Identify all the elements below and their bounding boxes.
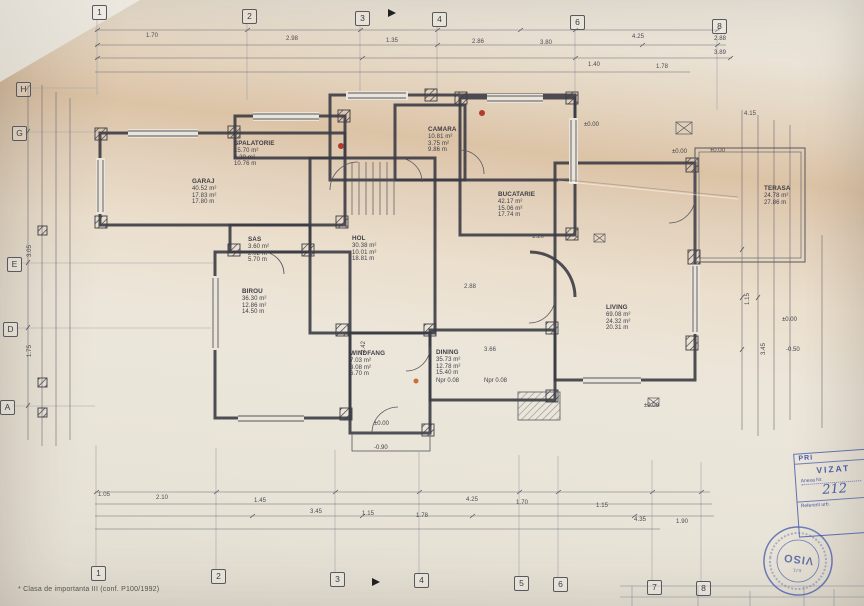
level-label: Npr 0.08	[436, 378, 459, 384]
grid-marker-left: G	[12, 126, 27, 141]
dim-label: 1.45	[254, 498, 266, 504]
grid-marker-left: H	[16, 82, 31, 97]
room-label-hol: HOL30.38 m²10.01 m²18.81 m	[352, 236, 376, 263]
dim-label: 3.89	[714, 50, 726, 56]
room-label-dining: DINING35.73 m²12.78 m²15.40 m	[436, 350, 460, 377]
room-label-camara: CAMARA10.81 m²3.75 m²9.86 m	[428, 127, 457, 154]
level-label: ±0.00	[374, 421, 389, 427]
grid-marker-bottom: 8	[696, 581, 711, 596]
dim-label: 1.78	[656, 64, 668, 70]
room-label-bucatarie: BUCATARIE42.17 m²15.06 m²17.74 m	[498, 192, 535, 219]
paper-crease	[558, 179, 738, 197]
paper-crease-highlight	[558, 181, 738, 199]
room-label-sas: SAS3.60 m²2.02 m²5.70 m	[248, 237, 269, 264]
dim-label: 3.80	[540, 40, 552, 46]
level-label: ±0.00	[710, 148, 725, 154]
dim-label: 3.45	[761, 343, 767, 355]
dim-label: 1.15	[596, 503, 608, 509]
dim-label: 2.88	[464, 284, 476, 290]
grid-marker-bottom: 1	[91, 566, 106, 581]
dim-label: 4.25	[466, 497, 478, 503]
room-label-windfang: WINDFANG7.03 m²3.08 m²6.70 m	[350, 351, 385, 378]
grid-marker-top: 1	[92, 5, 107, 20]
level-label: ±0.00	[782, 317, 797, 323]
level-label: -0.50	[786, 347, 800, 353]
dim-label: 3.45	[310, 509, 322, 515]
level-label: ±0.00	[584, 122, 599, 128]
grid-marker-left: D	[3, 322, 18, 337]
seal-sub: s.r.l.	[792, 566, 802, 573]
dim-label: 2.88	[714, 36, 726, 42]
dim-label: 2.98	[286, 36, 298, 42]
red-marker-dot	[479, 110, 485, 116]
dim-label: 2.86	[472, 39, 484, 45]
dim-label: 1.75	[27, 345, 33, 357]
dim-label: 3.66	[484, 347, 496, 353]
grid-marker-bottom: 4	[414, 573, 429, 588]
floor-plan-photo: VISO s.r.l. SPALATORIE15.70 m²6.30 m²10.…	[0, 0, 864, 606]
dim-label: 1.35	[386, 38, 398, 44]
room-label-terasa: TERASA24.78 m²27.86 m	[764, 186, 791, 206]
dimension-ticks	[26, 28, 760, 518]
dim-label: 1.20	[532, 234, 544, 240]
floor-plan-drawing: VISO s.r.l.	[0, 0, 864, 606]
section-arrow-icon	[372, 578, 380, 586]
orange-marker-dot	[414, 379, 419, 384]
dim-label: 1.05	[98, 492, 110, 498]
grid-marker-top: 8	[712, 19, 727, 34]
grid-leader-lines	[12, 20, 717, 581]
dim-label: 1.40	[588, 62, 600, 68]
section-arrow-icon	[388, 9, 396, 17]
thin-details	[262, 122, 805, 451]
dim-label: 1.90	[676, 519, 688, 525]
dim-label: 1.70	[146, 33, 158, 39]
grid-marker-bottom: 7	[647, 580, 662, 595]
seal-name: VISO	[782, 551, 814, 567]
level-label: Npr 0.08	[484, 378, 507, 384]
grid-marker-top: 4	[432, 12, 447, 27]
dim-label: 4.15	[744, 111, 756, 117]
room-label-spalatorie: SPALATORIE15.70 m²6.30 m²10.76 m	[234, 141, 275, 168]
level-label: ±0.00	[672, 149, 687, 155]
level-label: ±0.00	[644, 403, 659, 409]
dim-label: 1.15	[362, 511, 374, 517]
importance-class-note: * Clasa de importanta III (conf. P100/19…	[18, 586, 159, 593]
dim-label: 1.78	[416, 513, 428, 519]
dim-label: 1.70	[516, 500, 528, 506]
vizat-approval-stamp: PRI VIZAT Anexa Nr. 212 Referent urb.	[793, 448, 864, 537]
room-label-birou: BIROU36.30 m²12.86 m²14.50 m	[242, 289, 266, 316]
level-label: -0.90	[374, 445, 388, 451]
grid-marker-left: A	[0, 400, 15, 415]
red-marker-dot	[338, 143, 344, 149]
grid-marker-top: 3	[355, 11, 370, 26]
grid-marker-top: 6	[570, 15, 585, 30]
grid-marker-bottom: 5	[514, 576, 529, 591]
dim-label: 3.05	[27, 245, 33, 257]
grid-marker-bottom: 2	[211, 569, 226, 584]
dim-label: 2.42	[361, 341, 367, 353]
room-label-living: LIVING69.08 m²24.32 m²20.31 m	[606, 305, 630, 332]
dim-label: 4.25	[632, 34, 644, 40]
grid-marker-bottom: 3	[330, 572, 345, 587]
room-label-garaj: GARAJ40.52 m²17.83 m²17.80 m	[192, 179, 216, 206]
grid-marker-bottom: 6	[553, 577, 568, 592]
windows	[96, 91, 700, 423]
dim-label: 1.15	[745, 293, 751, 305]
grid-marker-top: 2	[242, 9, 257, 24]
dim-label: 2.10	[156, 495, 168, 501]
grid-marker-left: E	[7, 257, 22, 272]
dim-label: 4.35	[634, 517, 646, 523]
